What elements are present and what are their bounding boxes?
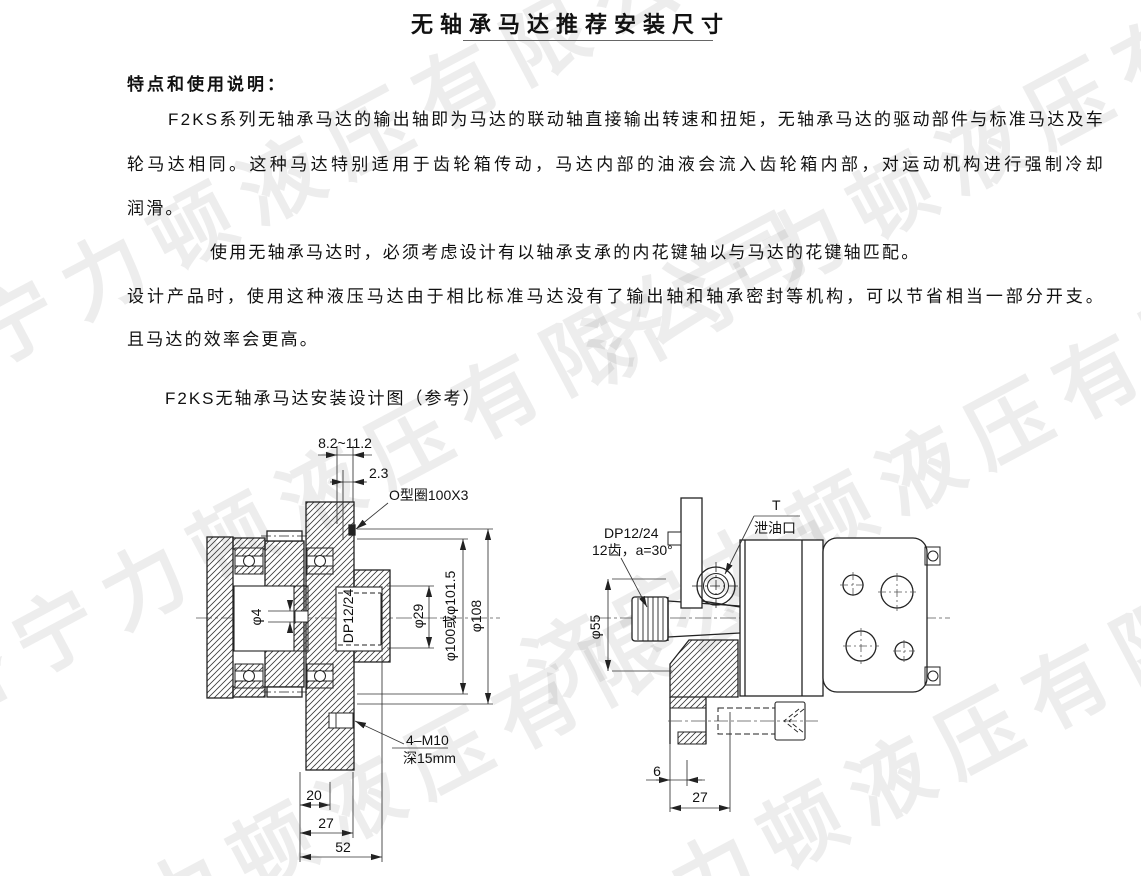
body-line: 使用无轴承马达时，必须考虑设计有以轴承支承的内花键轴以与马达的花键轴匹配。 (210, 243, 920, 263)
bolt-spec-label: 4–M10 (406, 732, 449, 748)
spline-label: DP12/24 (340, 589, 356, 644)
dim-d108-label: φ108 (468, 600, 484, 633)
body-line: 且马达的效率会更高。 (127, 330, 319, 350)
dim-gap-label: 8.2~11.2 (318, 435, 372, 451)
dim-d4-label: φ4 (248, 608, 264, 625)
page-title: 无轴承马达推荐安装尺寸 (0, 7, 1141, 39)
spline-spec-line2: 12齿，a=30° (592, 542, 673, 558)
catalog-page: 济宁力顿液压有限公司 济宁力顿液压有限公司 济宁力顿液压有限公司 济宁力顿液压有… (0, 0, 1141, 876)
figure-caption: F2KS无轴承马达安装设计图（参考） (165, 384, 482, 409)
dim-6-label: 6 (653, 763, 661, 779)
section-heading: 特点和使用说明： (127, 70, 287, 95)
oring-label: O型圈100X3 (389, 487, 469, 503)
dim-d55-label: φ55 (587, 614, 603, 639)
dim-27-label: 27 (318, 815, 334, 831)
drain-port-label: 泄油口 (754, 520, 796, 536)
dim-52-label: 52 (335, 839, 351, 855)
installation-drawings: 8.2~11.2 2.3 O型圈100X3 φ4 DP12/24 φ29 φ10… (0, 0, 1141, 876)
dim-d29-label: φ29 (410, 603, 426, 628)
spline-spec-line1: DP12/24 (604, 525, 659, 541)
body-line: 设计产品时，使用这种液压马达由于相比标准马达没有了输出轴和轴承密封等机构，可以节… (127, 287, 1105, 307)
bolt-depth-label: 深15mm (403, 750, 456, 766)
dim-step-label: 2.3 (369, 465, 389, 481)
body-line: F2KS系列无轴承马达的输出轴即为马达的联动轴直接输出转速和扭矩，无轴承马达的驱… (168, 110, 1105, 130)
title-underline (463, 40, 713, 41)
dim-27-label: 27 (692, 789, 708, 805)
body-line: 轮马达相同。这种马达特别适用于齿轮箱传动，马达内部的油液会流入齿轮箱内部，对运动… (127, 155, 1105, 175)
port-code-label: T (772, 497, 781, 513)
dim-d100-label: φ100或φ101.5 (442, 571, 458, 662)
body-line: 润滑。 (127, 199, 185, 219)
dim-20-label: 20 (306, 787, 322, 803)
